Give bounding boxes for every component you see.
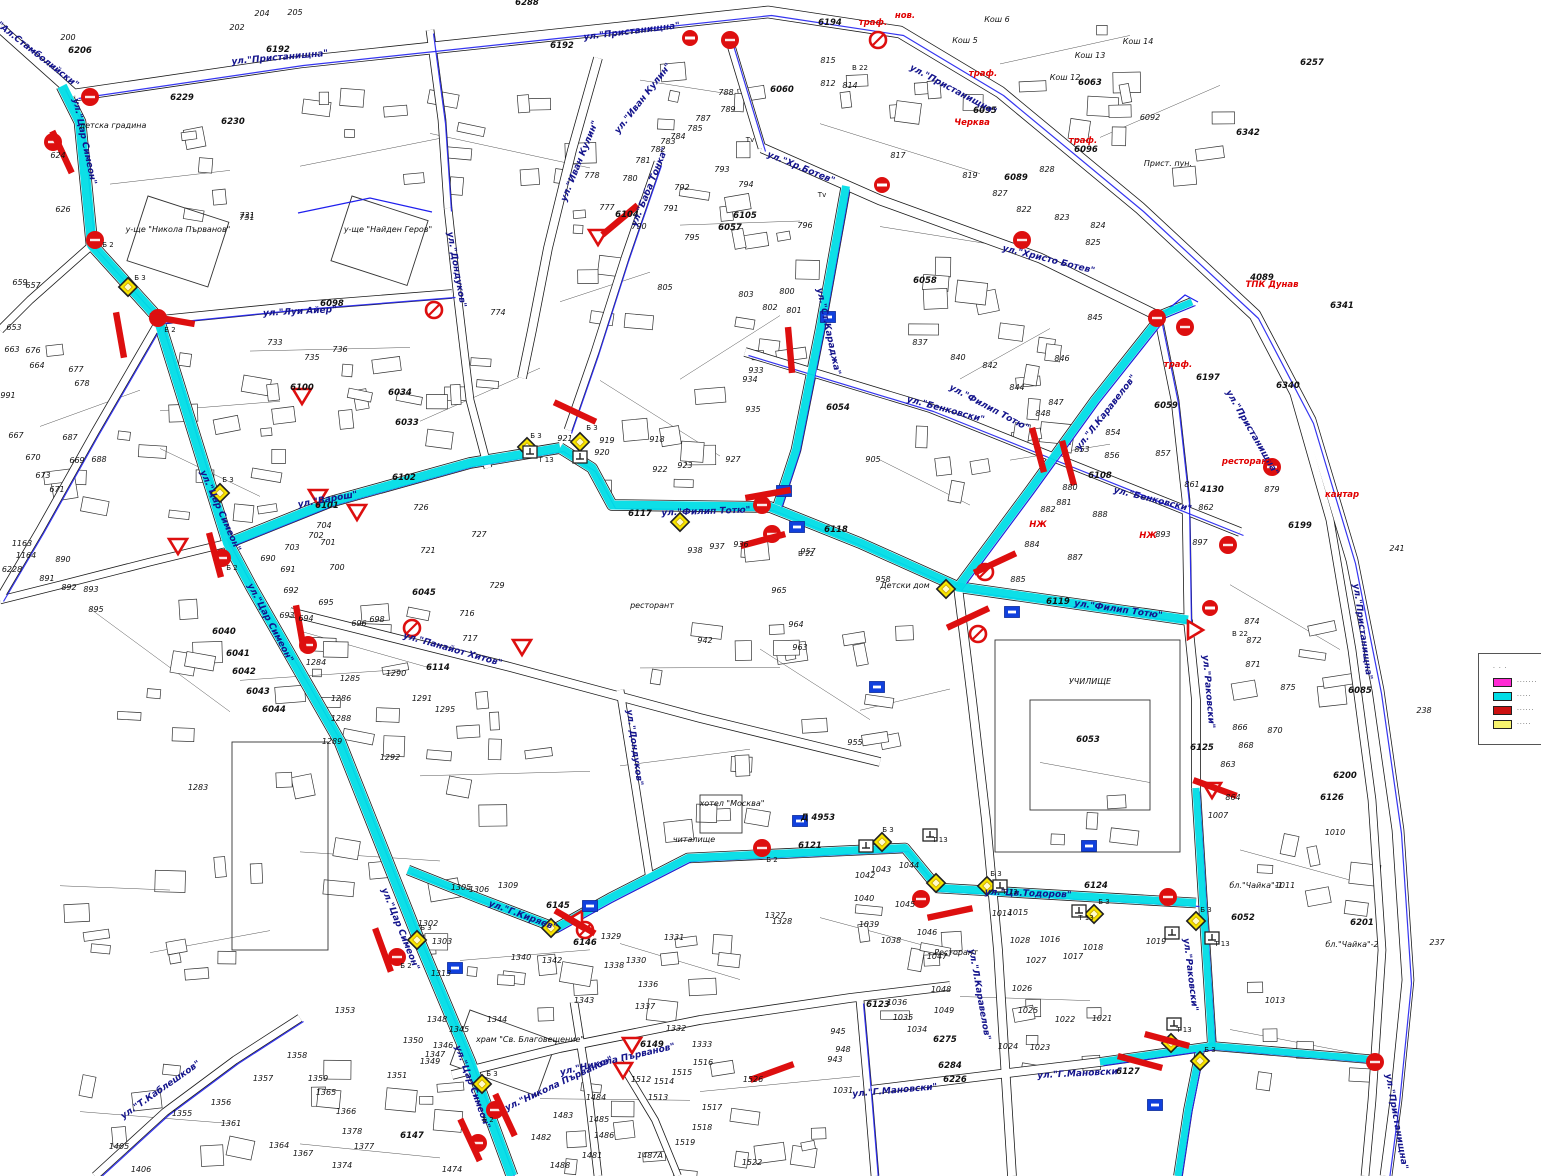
building-footprint — [457, 122, 485, 136]
landmark-label: Кош 5 — [952, 36, 978, 45]
building-footprint — [476, 380, 498, 389]
parcel-number: 1522 — [742, 1158, 762, 1167]
parcel-number: 731 — [239, 211, 254, 220]
building-footprint — [622, 418, 649, 441]
parcel-number: 693 — [279, 611, 294, 620]
parcel-number: 676 — [25, 346, 40, 355]
parcel-number: 1288 — [331, 714, 351, 723]
sign-code-label: Б 3 — [420, 924, 431, 932]
building-footprint — [802, 718, 828, 733]
building-footprint — [680, 441, 704, 462]
street-segment-code: 6275 — [933, 1035, 957, 1045]
landmark-label: хотел "Москва" — [699, 799, 765, 808]
building-footprint — [376, 708, 399, 723]
building-footprint — [272, 406, 296, 424]
parcel-number: 700 — [329, 563, 344, 572]
landmark-footprint — [331, 196, 428, 285]
building-footprint — [935, 257, 951, 277]
parcel-number: 1303 — [432, 937, 452, 946]
parcel-number: 862 — [1198, 503, 1213, 512]
street-segment-code: 6043 — [246, 687, 270, 697]
parcel-number: 920 — [594, 448, 609, 457]
parcel-number: 848 — [1035, 409, 1050, 418]
parcel-number: 204 — [254, 9, 269, 18]
parcel-number: 1366 — [336, 1107, 356, 1116]
stop-sign-icon — [1219, 536, 1237, 554]
parcel-number: 1484 — [586, 1093, 606, 1102]
parcel-number: 1028 — [1010, 936, 1030, 945]
parcel-number: 670 — [25, 453, 40, 462]
parcel-number: 1340 — [511, 953, 531, 962]
street-segment-code: 6197 — [1196, 373, 1220, 383]
parcel-number: 922 — [652, 465, 667, 474]
parcel-number: 1010 — [1325, 828, 1345, 837]
landmark-label: Кош 6 — [984, 15, 1010, 24]
poi-red-label: Черква — [954, 118, 990, 128]
parcel-number: 698 — [369, 615, 384, 624]
stop-sign-icon — [721, 31, 739, 49]
parcel-number: 823 — [1054, 213, 1069, 222]
landmark-label: детска градина — [79, 121, 147, 130]
parcel-number: 200 — [60, 33, 75, 42]
stop-sign-icon — [81, 88, 99, 106]
landmark-label: Ресторант — [934, 948, 978, 957]
poi-red-label: кантар — [1325, 490, 1359, 500]
parcel-number: 202 — [229, 23, 244, 32]
building-footprint — [1308, 621, 1337, 637]
parcel-boundary — [60, 886, 170, 890]
sign-code-label: Б 2 — [164, 326, 175, 334]
building-footprint — [340, 88, 365, 107]
street-segment-code: 6199 — [1288, 521, 1312, 531]
parcel-number: 780 — [622, 174, 637, 183]
parcel-boundary — [1040, 762, 1150, 782]
parcel-number: 874 — [1244, 617, 1259, 626]
street-segment-code: 6226 — [943, 1075, 967, 1085]
parcel-number: 784 — [670, 132, 685, 141]
building-footprint — [213, 415, 240, 434]
street-segment-code: 6058 — [913, 276, 937, 286]
parcel-number: 792 — [674, 183, 689, 192]
poi-red-label: НЖ — [1029, 520, 1047, 530]
sign-code-label: Тv — [817, 191, 826, 199]
building-footprint — [46, 344, 64, 356]
parcel-number: 895 — [88, 605, 103, 614]
building-footprint — [909, 324, 939, 335]
parcel-number: 897 — [1192, 538, 1208, 547]
parcel-number: 653 — [6, 323, 21, 332]
parcel-boundary — [640, 667, 780, 668]
building-footprint — [185, 968, 209, 981]
street-segment-code: 6123 — [866, 1000, 890, 1010]
poi-red-label: НЖ — [1139, 531, 1157, 541]
parcel-number: 1306 — [469, 885, 489, 894]
building-footprint — [384, 105, 408, 117]
building-footprint — [1019, 81, 1046, 92]
parcel-number: 678 — [74, 379, 89, 388]
parcel-number: 824 — [1090, 221, 1105, 230]
building-footprint — [955, 280, 988, 305]
parcel-number: 789 — [720, 105, 735, 114]
parcel-number: 694 — [298, 614, 313, 623]
parcel-number: 863 — [1220, 760, 1235, 769]
parcel-number: 237 — [1429, 938, 1445, 947]
parcel-number: 1345 — [449, 1025, 469, 1034]
building-footprint — [559, 962, 593, 987]
street-name-label: ул."Христо Ботев" — [1001, 244, 1095, 277]
parcel-number: 918 — [649, 435, 664, 444]
building-footprint — [736, 142, 750, 158]
building-footprint — [488, 739, 501, 760]
parcel-number: 688 — [91, 455, 106, 464]
parcel-number: 205 — [287, 8, 302, 17]
building-footprint — [735, 755, 750, 776]
road-surface — [95, 1018, 300, 1176]
parcel-number: 1045 — [895, 900, 915, 909]
map-legend: · · ························ — [1478, 653, 1541, 745]
parcel-number: 875 — [1280, 683, 1295, 692]
street-segment-code: 6033 — [395, 418, 419, 428]
building-footprint — [650, 669, 662, 685]
stop-sign-icon — [1176, 318, 1194, 336]
building-footprint — [342, 364, 353, 377]
parcel-number: 1031 — [833, 1086, 853, 1095]
info-sign-icon — [790, 522, 805, 533]
building-footprint — [403, 173, 424, 185]
parcel-number: 1019 — [1146, 937, 1166, 946]
legend-item: ····· — [1493, 690, 1541, 702]
street-segment-code: 6119 — [1046, 597, 1070, 607]
street-segment-code: 6045 — [412, 588, 436, 598]
street-segment-code: 6114 — [426, 663, 450, 673]
parcel-number: 1024 — [998, 1042, 1018, 1051]
street-segment-code: 6192 — [550, 41, 574, 51]
parcel-number: 1292 — [380, 753, 400, 762]
parcel-number: 893 — [1155, 530, 1170, 539]
street-segment-code: 6121 — [798, 841, 822, 851]
street-segment-code: 6230 — [221, 117, 245, 127]
parcel-number: 866 — [1232, 723, 1247, 732]
sign-code-label: Б 2 — [482, 1116, 493, 1124]
sign-code-label: Б 3 — [1098, 898, 1109, 906]
parcel-number: 856 — [1104, 451, 1119, 460]
no-stopping-sign-icon — [870, 32, 886, 48]
parcel-number: 887 — [1067, 553, 1083, 562]
building-footprint — [573, 210, 586, 219]
street-segment-code: 6034 — [388, 388, 412, 398]
street-segment-code: 6341 — [1330, 301, 1354, 311]
building-footprint — [291, 774, 315, 799]
parcel-number: 1337 — [635, 1002, 656, 1011]
sign-code-label: Т 13 — [931, 836, 947, 844]
parcel-number: 864 — [1225, 793, 1240, 802]
building-footprint — [457, 725, 480, 739]
legend-label: ······ — [1517, 707, 1534, 714]
street-segment-code: 6257 — [1300, 58, 1324, 68]
building-footprint — [446, 776, 471, 798]
parcel-number: 822 — [1016, 205, 1031, 214]
building-footprint — [407, 607, 430, 621]
parcel-number: 1018 — [1083, 943, 1103, 952]
building-footprint — [896, 626, 914, 641]
parcel-number: 690 — [260, 554, 275, 563]
building-footprint — [769, 624, 784, 634]
legend-label: ······· — [1517, 679, 1537, 686]
building-footprint — [916, 426, 928, 448]
building-footprint — [218, 951, 236, 964]
parcel-number: 624 — [50, 151, 65, 160]
building-footprint — [166, 939, 187, 955]
building-footprint — [138, 445, 166, 459]
parcel-number: 1329 — [601, 932, 621, 941]
street-name-label: ул."Филип Тотю" — [1074, 599, 1164, 621]
legend-item: ······ — [1493, 704, 1541, 716]
parcel-number: 964 — [788, 620, 803, 629]
signpost-table-icon — [859, 840, 873, 852]
parcel-number: 1286 — [331, 694, 351, 703]
legend-swatch — [1493, 706, 1512, 715]
parcel-number: 673 — [35, 471, 50, 480]
parcel-number: 812 — [820, 79, 835, 88]
parcel-number: 669 — [69, 456, 84, 465]
building-footprint — [1195, 146, 1224, 161]
street-segment-code: 6059 — [1154, 401, 1178, 411]
building-footprint — [840, 91, 852, 108]
parcel-number: 1519 — [675, 1138, 695, 1147]
building-footprint — [426, 395, 447, 409]
building-footprint — [471, 358, 492, 367]
street-segment-code: 6060 — [770, 85, 794, 95]
building-footprint — [1110, 828, 1139, 845]
poi-red-label: траф. — [1069, 136, 1097, 146]
building-footprint — [257, 504, 277, 514]
landmark-label: у-ще "Никола Първанов" — [125, 225, 231, 234]
parcel-number: 805 — [657, 283, 672, 292]
building-footprint — [777, 231, 791, 241]
building-footprint — [525, 747, 553, 759]
street-segment-code: 6117 — [628, 509, 652, 519]
parcel-number: 840 — [950, 353, 965, 362]
building-footprint — [1172, 166, 1196, 186]
building-footprint — [689, 978, 717, 996]
parcel-number: 945 — [830, 1027, 845, 1036]
building-footprint — [624, 313, 653, 329]
building-footprint — [712, 934, 732, 955]
building-footprint — [172, 728, 194, 742]
parcel-boundary — [300, 138, 440, 166]
building-footprint — [735, 641, 752, 661]
parcel-number: 663 — [4, 345, 19, 354]
building-footprint — [1097, 25, 1108, 35]
street-segment-code: 6040 — [212, 627, 236, 637]
parcel-number: 1285 — [340, 674, 360, 683]
parcel-number: 882 — [1040, 505, 1055, 514]
building-footprint — [489, 712, 499, 730]
parcel-number: 241 — [1389, 544, 1404, 553]
sign-code-label: В 22 — [798, 550, 814, 558]
parcel-number: 1039 — [859, 920, 879, 929]
parcel-number: 938 — [687, 546, 702, 555]
no-stopping-sign-icon — [970, 626, 986, 642]
parcel-number: 1406 — [131, 1165, 151, 1174]
parcel-number: 667 — [8, 431, 24, 440]
parcel-number: 1348 — [427, 1015, 447, 1024]
building-footprint — [476, 691, 489, 709]
parcel-number: 787 — [695, 114, 711, 123]
building-footprint — [1299, 649, 1326, 660]
building-footprint — [169, 510, 190, 520]
landmark-label: бл."Чайка"-2 — [1325, 940, 1378, 949]
building-footprint — [657, 119, 674, 130]
parcel-number: 1487А — [637, 1151, 663, 1160]
parcel-number: 1021 — [1092, 1014, 1112, 1023]
parcel-number: 919 — [599, 436, 614, 445]
parcel-number: 1163 — [12, 539, 32, 548]
parcel-number: 1342 — [542, 956, 562, 965]
parcel-number: 774 — [490, 308, 505, 317]
rehabilitated-route-highlight — [62, 86, 512, 1176]
street-segment-code: 6041 — [226, 649, 250, 659]
building-footprint — [275, 685, 306, 704]
building-footprint — [735, 317, 755, 329]
parcel-number: 1023 — [1030, 1043, 1050, 1052]
building-footprint — [573, 225, 583, 234]
info-sign-icon — [1148, 1100, 1163, 1111]
parcel-number: 1025 — [1018, 1006, 1038, 1015]
parcel-number: 1481 — [582, 1151, 602, 1160]
map-stage: 2002022042056246267516596576536636766646… — [0, 0, 1541, 1176]
building-footprint — [426, 429, 454, 449]
street-segment-code: 6201 — [1350, 918, 1374, 928]
building-footprint — [796, 260, 820, 279]
parcel-number: 955 — [847, 738, 862, 747]
parcel-number: 943 — [827, 1055, 842, 1064]
building-footprint — [1231, 680, 1257, 700]
building-footprint — [347, 388, 372, 402]
landmark-label: у-ще "Найден Геров" — [343, 225, 432, 234]
parcel-number: 927 — [725, 455, 741, 464]
sign-code-label: В 22 — [852, 64, 868, 72]
parcel-number: 857 — [1155, 449, 1171, 458]
parcel-number: 1027 — [1026, 956, 1047, 965]
parcel-number: 1367 — [293, 1149, 314, 1158]
legend-swatch — [1493, 720, 1512, 729]
street-name-label: ул."Филип Тотю" — [661, 505, 750, 518]
parcel-number: 735 — [304, 353, 319, 362]
building-footprint — [517, 95, 530, 113]
parcel-number: 6092 — [1140, 113, 1160, 122]
building-footprint — [660, 952, 678, 966]
building-footprint — [1247, 982, 1262, 993]
parcel-number: 1331 — [664, 933, 684, 942]
parcel-number: 1330 — [626, 956, 646, 965]
parcel-number: 885 — [1010, 575, 1025, 584]
sign-code-label: Т 13 — [1077, 914, 1093, 922]
landmark-label: Прист. пун. — [1144, 159, 1192, 168]
parcel-number: 736 — [332, 345, 347, 354]
parcel-number: 1043 — [871, 865, 891, 874]
parcel-number: 733 — [267, 338, 282, 347]
parcel-number: 1377 — [354, 1142, 375, 1151]
building-footprint — [181, 131, 197, 141]
sign-code-label: Б 2 — [226, 564, 237, 572]
street-name-label: ул."Никола Първанов" — [504, 1055, 615, 1114]
info-sign-icon — [1082, 841, 1097, 852]
sign-code-label: Б 3 — [486, 1070, 497, 1078]
signpost-table-icon — [573, 451, 587, 463]
legend-item: ····· — [1493, 718, 1541, 730]
street-segment-code: 6053 — [1076, 735, 1100, 745]
parcel-number: 872 — [1246, 636, 1261, 645]
city-map-canvas[interactable]: 2002022042056246267516596576536636766646… — [0, 0, 1541, 1176]
parcel-number: 1313 — [431, 969, 451, 978]
building-footprint — [923, 288, 948, 309]
water-main-line — [232, 452, 564, 547]
parcel-number: 1332 — [666, 1024, 686, 1033]
building-footprint — [212, 189, 226, 205]
street-segment-code: 6057 — [718, 223, 742, 233]
parcel-boundary — [300, 852, 440, 861]
building-footprint — [1257, 865, 1273, 874]
landmark-label: Кош 13 — [1075, 51, 1106, 60]
parcel-number: 1513 — [648, 1093, 668, 1102]
sign-code-label: Т 13 — [1001, 888, 1017, 896]
building-footprint — [338, 409, 353, 429]
parcel-number: 1283 — [188, 783, 208, 792]
parcel-number: 892 — [61, 583, 76, 592]
priority-road-sign-icon — [571, 433, 589, 451]
parcel-number: 933 — [748, 366, 763, 375]
building-footprint — [613, 1120, 635, 1139]
parcel-number: 704 — [316, 521, 331, 530]
parcel-number: 1007 — [1208, 811, 1229, 820]
parcel-number: 948 — [835, 1045, 850, 1054]
stop-sign-icon — [1148, 309, 1166, 327]
parcel-number: 870 — [1267, 726, 1282, 735]
parcel-number: 819 — [962, 171, 977, 180]
parcel-number: 842 — [982, 361, 997, 370]
sign-code-label: Б 3 — [222, 476, 233, 484]
street-segment-code: 6102 — [392, 473, 416, 483]
building-footprint — [420, 1096, 433, 1104]
building-footprint — [668, 90, 680, 102]
info-sign-icon — [870, 682, 885, 693]
parcel-number: 825 — [1085, 238, 1100, 247]
building-footprint — [79, 1075, 96, 1098]
parcel-number: 1026 — [1012, 984, 1032, 993]
parcel-number: 1049 — [934, 1006, 954, 1015]
street-segment-code: 6100 — [290, 383, 314, 393]
parcel-number: 868 — [1238, 741, 1253, 750]
building-footprint — [155, 870, 186, 892]
parcel-number: 1291 — [412, 694, 432, 703]
street-name-label: ул."Панайот Хитов" — [402, 631, 503, 669]
parcel-number: 1517 — [702, 1103, 723, 1112]
parcel-number: 923 — [677, 461, 692, 470]
parcel-number: 827 — [992, 189, 1008, 198]
street-segment-code: 6340 — [1276, 381, 1300, 391]
building-footprint — [437, 1082, 464, 1092]
sign-code-label: Б 3 — [990, 870, 1001, 878]
parcel-number: 800 — [779, 287, 794, 296]
street-segment-code: 6284 — [938, 1061, 962, 1071]
building-footprint — [1212, 112, 1234, 124]
building-footprint — [345, 129, 355, 137]
street-segment-code: 6200 — [1333, 771, 1357, 781]
parcel-number: 1343 — [574, 996, 594, 1005]
parcel-number: 664 — [29, 361, 44, 370]
street-segment-code: 6105 — [733, 211, 757, 221]
